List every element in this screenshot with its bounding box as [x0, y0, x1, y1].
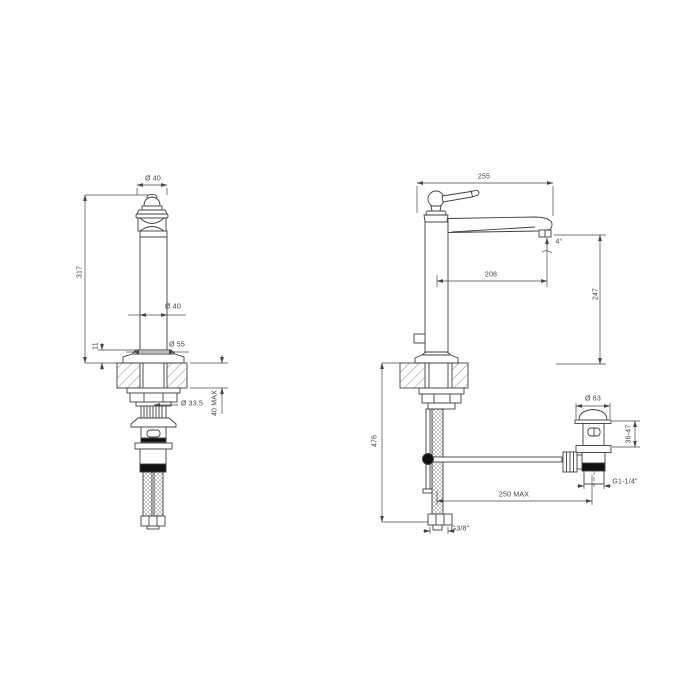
side-view-counter-section — [400, 363, 468, 388]
dim-side-overall-projection: 255 — [478, 174, 490, 181]
side-view-faucet — [414, 190, 552, 363]
dim-side-hose-thread: G3/8" — [451, 526, 470, 533]
front-view-faucet — [123, 194, 184, 363]
dim-front-top-diameter: Ø 40 — [145, 176, 161, 183]
drain-assembly — [563, 410, 611, 490]
dim-front-counter-thickness: 40 MAX — [212, 390, 219, 416]
dim-front-body-diameter: Ø 40 — [165, 304, 181, 311]
front-view-counter-section — [117, 363, 187, 388]
dim-side-spout-height: 247 — [593, 288, 600, 300]
dim-front-shank-diameter: Ø 33.5 — [181, 401, 203, 408]
faucet-technical-drawing — [0, 0, 700, 700]
dim-drain-mounting-range: 36-47 — [626, 425, 633, 444]
dim-side-spout-projection: 208 — [485, 272, 497, 279]
dim-side-spout-angle: 4° — [555, 239, 562, 246]
dim-front-base-diameter: Ø 55 — [169, 342, 185, 349]
front-view-undercounter-parts — [127, 388, 180, 529]
dim-drain-cap-diameter: Ø 63 — [585, 396, 601, 403]
dim-drain-waste-thread: G1-1/4" — [612, 479, 637, 486]
side-view-hose-and-rod — [419, 388, 562, 530]
drawing-canvas: Ø 40 317 Ø 40 Ø 55 11 40 MAX Ø 33.5 255 … — [0, 0, 700, 700]
dim-front-height: 317 — [77, 266, 84, 278]
dim-side-under-counter-depth: 476 — [372, 435, 379, 447]
dim-front-base-height: 11 — [93, 342, 100, 350]
dim-side-rod-projection: 250 MAX — [499, 492, 529, 499]
